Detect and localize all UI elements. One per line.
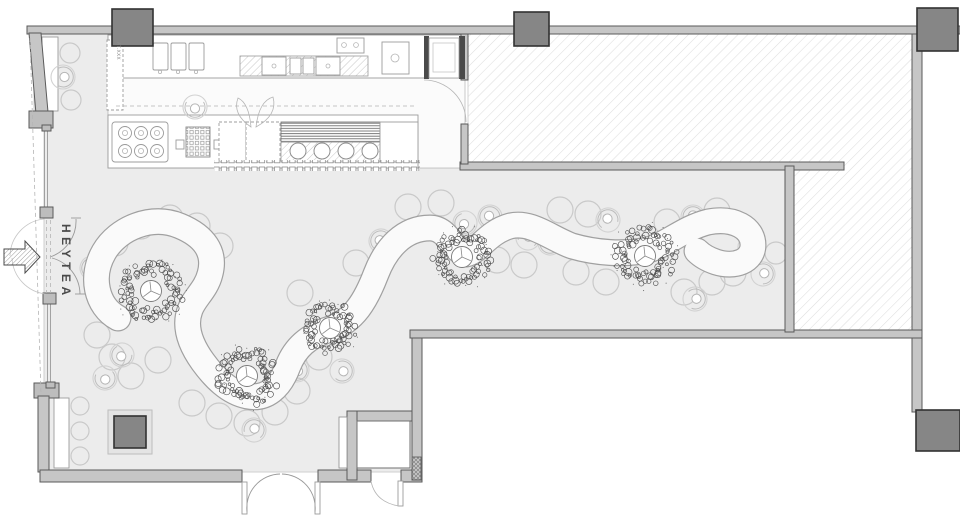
tank xyxy=(314,143,330,159)
dotted-station xyxy=(219,122,246,162)
bottom-wall-mid xyxy=(318,470,371,482)
step-wall-horizontal xyxy=(410,330,922,338)
rear-door-leaf xyxy=(315,482,320,514)
utility-room-interior xyxy=(357,421,410,468)
tank xyxy=(338,143,354,159)
interior-column xyxy=(114,416,146,448)
rear-door-leaf xyxy=(242,482,247,514)
fridge xyxy=(171,43,186,70)
control-panel xyxy=(337,38,364,53)
tank xyxy=(362,143,378,159)
counter-unit xyxy=(290,58,301,74)
brand-label: HEYTEA xyxy=(59,224,73,300)
fridge xyxy=(189,43,204,70)
kitchen-note-label: AT.XXX xyxy=(115,42,121,60)
bottom-wall-left xyxy=(40,470,242,482)
small-box xyxy=(176,140,184,149)
counter-unit xyxy=(303,58,314,74)
right-wall xyxy=(912,34,922,412)
column xyxy=(916,410,960,451)
prep-machine xyxy=(382,42,409,74)
left-wall-lower xyxy=(38,396,49,472)
rear-door-swing xyxy=(247,474,280,512)
store-room-wall xyxy=(459,36,465,79)
sink xyxy=(316,57,340,75)
pos-terminal xyxy=(186,127,210,157)
crosshatch-pier xyxy=(412,457,421,480)
wall-slot xyxy=(339,417,347,468)
kitchen-divider-lower xyxy=(461,124,468,164)
mullion-tick xyxy=(42,125,51,131)
side-door-leaf xyxy=(398,481,403,506)
sink xyxy=(262,57,286,75)
mullion xyxy=(40,207,53,218)
column xyxy=(917,8,958,51)
bar-top xyxy=(281,122,380,142)
tank xyxy=(290,143,306,159)
column xyxy=(112,9,153,46)
floor-plan: HEYTEA AT.XXX xyxy=(0,0,960,516)
column xyxy=(514,12,549,46)
fridge xyxy=(153,43,168,70)
mullion xyxy=(43,293,56,304)
utility-room-wall-left xyxy=(347,411,357,480)
grid-station xyxy=(246,122,280,162)
store-room-wall xyxy=(424,36,429,79)
counter-end xyxy=(380,122,418,162)
side-door-swing xyxy=(371,481,399,506)
window-bench xyxy=(54,398,69,468)
entry-arrow-icon xyxy=(4,241,40,273)
page-background: HEYTEA AT.XXX xyxy=(0,0,960,516)
mullion-tick xyxy=(46,382,55,388)
top-wall xyxy=(27,26,960,34)
rear-door-swing xyxy=(282,474,315,512)
hatch-divider-wall xyxy=(785,166,794,332)
tile-strip xyxy=(214,160,420,171)
